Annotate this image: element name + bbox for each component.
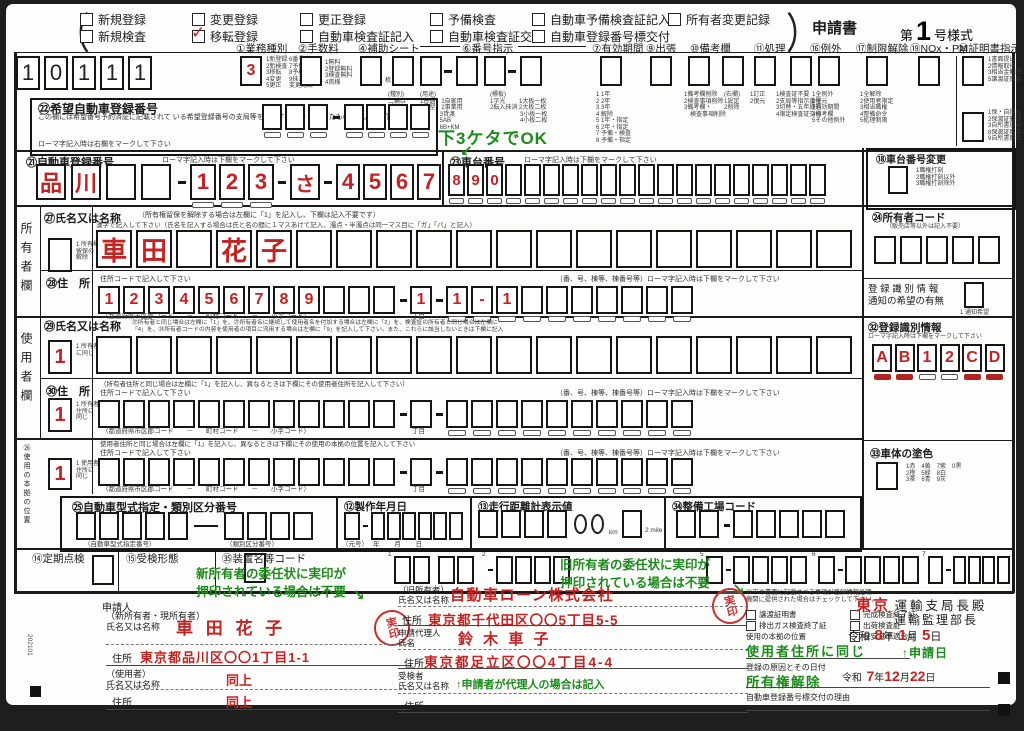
color-cell xyxy=(876,462,898,490)
dash xyxy=(324,181,332,184)
color-note: 1赤 4黄 7紫 0黒 2橙 5緑 8白 3茶 6青 9灰 xyxy=(906,464,961,484)
user-addr-flag-label: 1 所有者 住所に 同じ xyxy=(76,402,99,422)
sochi-group-cells xyxy=(438,556,474,584)
field-label-biko: ⑩備考欄 xyxy=(690,41,731,56)
line xyxy=(746,710,990,711)
honkyo-chome-cell xyxy=(410,458,432,486)
unit: 日 xyxy=(925,673,935,684)
shori-cells-a xyxy=(754,56,776,86)
sochi-group-sup: 1 xyxy=(388,551,392,558)
checkbox-box xyxy=(300,13,313,26)
office-code-cells: 10111 xyxy=(16,56,152,90)
katashiki-cells-b xyxy=(224,512,313,540)
divider xyxy=(336,496,338,548)
dash xyxy=(194,525,218,527)
shori-cells-b xyxy=(790,56,812,86)
addr-label: 住所 xyxy=(112,694,132,709)
line xyxy=(746,658,910,659)
divider xyxy=(862,148,864,548)
checkbox-shinki-touroku: 新規登録 xyxy=(80,11,146,28)
unit: 年 xyxy=(883,631,894,643)
unit: 年 xyxy=(874,673,884,684)
line xyxy=(106,665,412,666)
seibi-cells-b xyxy=(733,510,845,538)
checkbox-box xyxy=(80,13,93,26)
color-title: ㉝車体の塗色 xyxy=(870,446,933,461)
divider xyxy=(862,440,1014,441)
green-arrow-icon: ↘ xyxy=(352,586,365,604)
dash xyxy=(726,569,731,571)
owner-addr-banchi-cells: 1-1 xyxy=(446,286,693,322)
seisaku-cells-date xyxy=(371,512,463,540)
honkyo-banchi-cells xyxy=(446,458,693,494)
dash xyxy=(508,70,516,73)
unit: 日 xyxy=(930,631,941,643)
checkbox-label: 更正登録 xyxy=(318,11,366,28)
biko-note-a: 1備考欄削除 2検査事項削除 3備考欄・ 検査事項削除 xyxy=(684,92,726,118)
owner-side-label: 所有者欄 xyxy=(18,222,35,298)
kibo-cells-b xyxy=(344,104,430,138)
owner-flag-cell xyxy=(48,238,72,272)
seisaku-labels: （元号） 年 月 日 xyxy=(342,542,422,549)
line xyxy=(106,709,412,710)
field-label-yuko: ⑦有効期間 xyxy=(592,41,643,56)
dash xyxy=(278,181,286,184)
biko-cells-b xyxy=(722,56,744,86)
dash xyxy=(436,413,443,416)
biko-note-b: (右欄) 1設定 2削除 xyxy=(724,92,740,112)
jukensha-label: 受検者 氏名又は名称 xyxy=(398,672,449,691)
divider xyxy=(862,278,1014,279)
kibo-note: ローマ字記入時は右欄をマークして下さい xyxy=(38,141,171,149)
user-side-label: 使用者欄 xyxy=(18,332,35,408)
dotted-line xyxy=(398,606,748,607)
notify-note: 1 通知希望 xyxy=(960,310,989,317)
new-owner-addr-value: 東京都品川区〇〇1丁目1-1 xyxy=(140,647,310,666)
field-label-shomei: ⑳証明書指示 xyxy=(958,41,1021,56)
hojo-cells xyxy=(360,56,382,86)
field-label-hojo: ④補助シート xyxy=(358,41,420,56)
checkbox-label: 所有者変更記録 xyxy=(686,11,770,28)
reason-date: 令和 7年12月22日 xyxy=(842,668,935,686)
checkbox-haishutsu-gas: 排出ガス検査終了証 xyxy=(746,620,827,631)
dotted-line xyxy=(106,689,412,690)
line xyxy=(398,625,748,626)
user-addr-note: （所有者住所と同じ場合は左欄に「1」を記入し、異なるときは下欄にその使用者住所を… xyxy=(100,381,409,389)
annotation-proxy-note: ↑申請者が代理人の場合は記入 xyxy=(456,676,605,692)
printed-zero-icon xyxy=(591,514,604,534)
soko-cells xyxy=(478,510,567,538)
field-label-bango: ⑥番号指示 xyxy=(462,41,513,56)
gyomu-cells: 3 xyxy=(240,56,262,86)
checkbox-box xyxy=(430,30,443,43)
old-owner-label: （旧所有者） 氏名又は名称 xyxy=(398,586,449,605)
honkyo-code-note: 住所コードで記入して下さい xyxy=(100,450,191,458)
owner-addr-chome-cell: 1 xyxy=(410,286,432,314)
reason-day: 22 xyxy=(910,668,926,684)
divider xyxy=(40,270,862,271)
owner-addr-title: ㉘住 所 xyxy=(46,275,90,291)
shomei-note-a: 1書面提出 2情報取得 3相当金解除 5譲渡証照会 xyxy=(988,57,1021,83)
shucchou-cells xyxy=(650,56,672,86)
checkbox-label: 新規検査 xyxy=(98,28,146,45)
checkbox-box xyxy=(532,13,545,26)
apply-year: 8 xyxy=(874,627,882,644)
dash xyxy=(436,299,443,302)
user-chome-label: 丁目 xyxy=(412,429,425,436)
sochi-group-sup: 7 xyxy=(922,551,926,558)
user-name-value: 同上 xyxy=(226,670,252,689)
registration-mark xyxy=(998,704,1010,716)
annotation-new-owner-stamp: 新所有者の委任状に実印が 押印されている場合は不要 xyxy=(196,565,346,601)
owner-name-note: （所有権留保を解除する場合は左欄に「1」を記入し、下欄は記入不要です） xyxy=(138,212,380,220)
owner-addr-note: 住所コードで記入して下さい xyxy=(100,276,191,284)
katashiki-label-b: （類別区分番号） xyxy=(226,542,278,549)
user-label: （使用者） 氏名又は名称 xyxy=(106,669,160,691)
sochi-group-cells xyxy=(818,556,835,584)
shadai-henko-title: ⑱車台番号変更 xyxy=(876,151,946,166)
office-pref-value: 東京 xyxy=(856,597,890,614)
checkbox-label: 排出ガス検査終了証 xyxy=(759,620,827,631)
katashiki-cells-a xyxy=(76,512,188,540)
shikibetsu-title: ㉜登録識別情報 xyxy=(868,320,942,335)
teiki-cell xyxy=(92,555,114,585)
reigai-note: 1全例外 2復元 3有効期間 4備考欄 5その他例外 xyxy=(812,92,845,125)
dash xyxy=(946,569,951,571)
divider xyxy=(518,46,586,47)
line xyxy=(398,668,748,669)
honkyo-note: 使用者住所と同じ場合は左欄に「1」を記入し、異なるときは下欄にその使用の本拠の位… xyxy=(100,441,415,449)
sochi-title: ㉟装置名等コード xyxy=(222,551,306,566)
divider xyxy=(442,150,444,205)
new-owner-name-value: 車 田 花 子 xyxy=(176,614,286,639)
owner-addr-code-cells: 123456789 xyxy=(98,286,395,314)
plate-reason-label: 自動車登録番号標交付の理由 xyxy=(746,692,850,703)
dash xyxy=(488,569,493,571)
user-flag-cell: 1 xyxy=(48,340,72,374)
proxy-name-value: 鈴 木 車 子 xyxy=(458,628,552,649)
shomei-note-b: 1保・自提出 2保渡証取得 3自所書提出 8保渡証照会 9自所書照会 xyxy=(988,110,1021,143)
apply-month: 1 xyxy=(898,627,906,644)
form-title: 申請書 xyxy=(812,17,857,38)
owner-code-cells xyxy=(874,236,1000,264)
checkbox-box xyxy=(192,30,205,43)
soko-unit-mile: 2 mile xyxy=(645,528,662,535)
checkbox-box xyxy=(668,13,681,26)
user-addr-code-cells xyxy=(98,400,395,428)
checkbox-yobi-kensasho-kinyu: 自動車予備検査証記入 xyxy=(532,11,670,28)
dash xyxy=(444,70,452,73)
bango-cells-b xyxy=(456,56,506,86)
old-owner-name-value: 自動車ローン株式会社 xyxy=(450,584,614,605)
katashiki-label-a: （自動車型式指定番号） xyxy=(84,542,156,549)
nox-cells xyxy=(918,56,940,86)
teiki-title: ⑭定期点検 xyxy=(32,551,85,566)
field-label-tesuryo: ②手数料 xyxy=(298,41,339,56)
honkyo-code-cells xyxy=(98,458,395,486)
dash xyxy=(724,524,730,527)
reason-value: 所有権解除 xyxy=(746,671,821,691)
checkbox-label: 譲渡証明書 xyxy=(759,609,797,620)
divider xyxy=(14,205,1014,207)
tesuryo-note: 1無料 2登録無料 3検査無料 4両様 xyxy=(325,60,352,86)
dash xyxy=(838,569,843,571)
owner-code-note: （販売店等以外は記入不要） xyxy=(886,224,964,231)
notify-cell xyxy=(964,282,984,308)
annotation-apply-date: ↑申請日 xyxy=(902,644,948,661)
proxy-label: 申請代理人 氏名 xyxy=(398,629,441,648)
field-label-seigen: ⑰制限解除 xyxy=(856,41,909,56)
shori-note-a: 1訂正 2復元 xyxy=(750,92,765,105)
bango-note-hyoban: (標板) 1字光 1大板一枚 2転入抹消 2大板二枚 3小板一枚 4小板二枚 xyxy=(490,92,547,125)
dash xyxy=(178,181,186,184)
field-label-shucchou: ⑨出張 xyxy=(646,41,676,56)
seibi-cells-a xyxy=(676,510,719,538)
honkyo-side-label: ㉖使用の本拠の位置 xyxy=(21,444,31,525)
honkyo-flag-label: 1 使用者 住所に 同じ xyxy=(76,461,99,481)
apply-date: 令和 8年 1月 5日 xyxy=(848,627,941,645)
reason-month: 12 xyxy=(884,668,900,684)
dash xyxy=(400,413,407,416)
reigai-cells xyxy=(818,56,840,86)
checkbox-label: 自動車予備検査証記入 xyxy=(550,11,670,28)
shomei-cells-a xyxy=(962,56,984,86)
yuko-note: 1 1年 2 2年 3 3年 4 解除 5 1年・指定 6 2年・指定 7 予備… xyxy=(596,92,631,144)
addr-label: 住所 xyxy=(112,650,132,665)
field-label-shori: ⑪処理 xyxy=(754,41,786,56)
dotted-line xyxy=(398,693,748,694)
bango-cells-c xyxy=(520,56,542,86)
touroku-cells-number: 4567 xyxy=(336,164,441,200)
seisaku-cell-era xyxy=(344,512,360,540)
kibo-cells-a xyxy=(262,104,328,138)
divider xyxy=(420,46,460,47)
user-addr-title: ㉚住 所 xyxy=(46,383,90,399)
checkbox-box xyxy=(532,30,545,43)
notify-label: 登 録 識 別 情 報 通知の希望の有無 xyxy=(868,284,944,308)
sochi-group-sup: 2 xyxy=(482,551,486,558)
checkbox-joto-shomeisho: 譲渡証明書 xyxy=(746,609,797,620)
divider xyxy=(14,438,862,440)
shadai-henko-cells xyxy=(888,166,908,194)
user-addr-code-note: 住所コードで記入して下さい xyxy=(100,390,191,398)
juken-title: ⑮受検形態 xyxy=(126,551,179,566)
soko-unit-km: km xyxy=(609,530,618,537)
addr-label: 住所 xyxy=(404,698,424,713)
divider xyxy=(956,56,957,146)
office-label2: 運輸監理部長 xyxy=(894,611,978,628)
user-name-note: ㉗所有者と同じ場合は左欄に「1」を、㉗所有者名に継続して使用者名を付加する場合は… xyxy=(132,320,503,333)
dotted-line xyxy=(106,644,412,645)
field-label-gyomu: ①業務種別 xyxy=(236,41,287,56)
divider xyxy=(118,548,119,591)
seigen-cells xyxy=(866,56,888,86)
registration-mark xyxy=(998,672,1010,684)
shadai-cells: 890 xyxy=(448,164,826,204)
checkbox-label: 新規登録 xyxy=(98,11,146,28)
shikibetsu-note: ローマ字記入時は下欄をマークして下さい xyxy=(868,334,982,341)
divider xyxy=(664,496,666,548)
line xyxy=(746,687,990,688)
sochi-group-cells xyxy=(394,556,430,584)
divider xyxy=(470,496,472,548)
honkyo-chome-label: 丁目 xyxy=(412,487,425,494)
user-name-title: ㉙氏名又は名称 xyxy=(44,318,121,334)
shadai-henko-note: 1職権打刻 2職権打刻以外 3職権打刻除外 xyxy=(916,168,955,188)
user-name-cells xyxy=(96,336,852,374)
biko-cells-a xyxy=(688,56,710,86)
tesuryo-cells xyxy=(300,56,322,86)
divider xyxy=(14,52,17,593)
shomei-cells-b xyxy=(962,112,984,142)
checkbox-shoyusha-henko-kiroku: 所有者変更記録 xyxy=(668,11,770,28)
sochi-group-cells xyxy=(496,556,570,584)
sochi-group-sup: 6 xyxy=(812,551,816,558)
divider xyxy=(40,205,41,438)
era-label: 令和 xyxy=(848,631,870,643)
dash xyxy=(436,471,443,474)
unit: 月 xyxy=(907,631,918,643)
unit: 月 xyxy=(900,673,910,684)
user-addr-banchi-cells xyxy=(446,400,693,436)
honkyo-code-labels: （都道府県市区郡コード － 町村コード － 小字コード） xyxy=(102,487,310,494)
honkyo-note2: （番、号、棟等、棟番号等）ローマ字記入時は下欄をマークして下さい xyxy=(556,450,780,458)
checkbox-box xyxy=(430,13,443,26)
soko-mile-cell xyxy=(622,510,642,538)
era-label: 令和 xyxy=(842,673,862,684)
line xyxy=(398,712,748,713)
checkbox-shinki-kensa: 新規検査 xyxy=(80,28,146,45)
user-addr-chome-cell xyxy=(410,400,432,428)
sochi-group-cells xyxy=(953,556,1010,584)
annotation-last3-ok: 下3ケタでOK xyxy=(438,124,548,149)
checkbox-label: 予備検査 xyxy=(448,11,496,28)
dash xyxy=(333,116,340,119)
hojo-unit: 枚 xyxy=(385,78,391,85)
user-addr-flag-cell: 1 xyxy=(48,398,72,432)
doc-code: 202101 xyxy=(26,634,33,656)
owner-name-cells: 車田花子 xyxy=(96,230,852,268)
old-owner-addr-value: 東京都千代田区〇〇5丁目5-5 xyxy=(428,609,619,629)
seigen-note: 1全解除 2使用者限定 3相当職権 4整備命令 5処理制限 xyxy=(860,92,893,125)
sochi-group-cells xyxy=(845,556,919,584)
field-label-reigai: ⑯例外 xyxy=(810,41,842,56)
scanned-form: （ 新規登録 変更登録 更正登録 予備検査 自動車予備検査証記入 所有者変更記録… xyxy=(0,0,1024,731)
owner-code-title: ㉔所有者コード xyxy=(872,210,946,225)
checkbox-kosei-touroku: 更正登録 xyxy=(300,11,366,28)
dotted-line xyxy=(398,649,748,650)
registration-mark xyxy=(30,686,41,697)
printed-zero-icon xyxy=(574,514,587,534)
checkbox-box xyxy=(746,621,756,631)
checkbox-label: 変更登録 xyxy=(210,11,258,28)
dash xyxy=(400,471,407,474)
user-addr-note2: （番、号、棟等、棟番号等）ローマ字記入時は下欄をマークして下さい xyxy=(556,390,780,398)
touroku-cells-class: 123 xyxy=(190,164,274,208)
owner-addr-note2: （番、号、棟等、棟番号等）ローマ字記入時は下欄をマークして下さい xyxy=(556,276,780,284)
shikibetsu-cells: AB12CD xyxy=(872,344,1005,380)
owner-kanji-note: 漢字で記入して下さい（氏名を記入する場合は氏と名の間に１マスあけて記入、濁点・半… xyxy=(96,223,476,230)
dash xyxy=(363,525,368,527)
touroku-cells-region: 品川 xyxy=(36,164,171,200)
checkbox-box xyxy=(80,30,93,43)
divider xyxy=(40,378,862,379)
user-addr-code-labels: （都道府県市区郡コード － 町村コード － 小字コード） xyxy=(102,429,310,436)
checkbox-yobi-kensa: 予備検査 xyxy=(430,11,496,28)
sochi-group-cells xyxy=(928,556,943,584)
honkyo-flag-cell: 1 xyxy=(48,458,72,490)
dash xyxy=(400,299,407,302)
yuko-cells xyxy=(600,56,622,86)
bango-cells-a xyxy=(392,56,442,86)
checkbox-box xyxy=(746,610,756,620)
touroku-cells-kana: さ xyxy=(290,164,320,200)
